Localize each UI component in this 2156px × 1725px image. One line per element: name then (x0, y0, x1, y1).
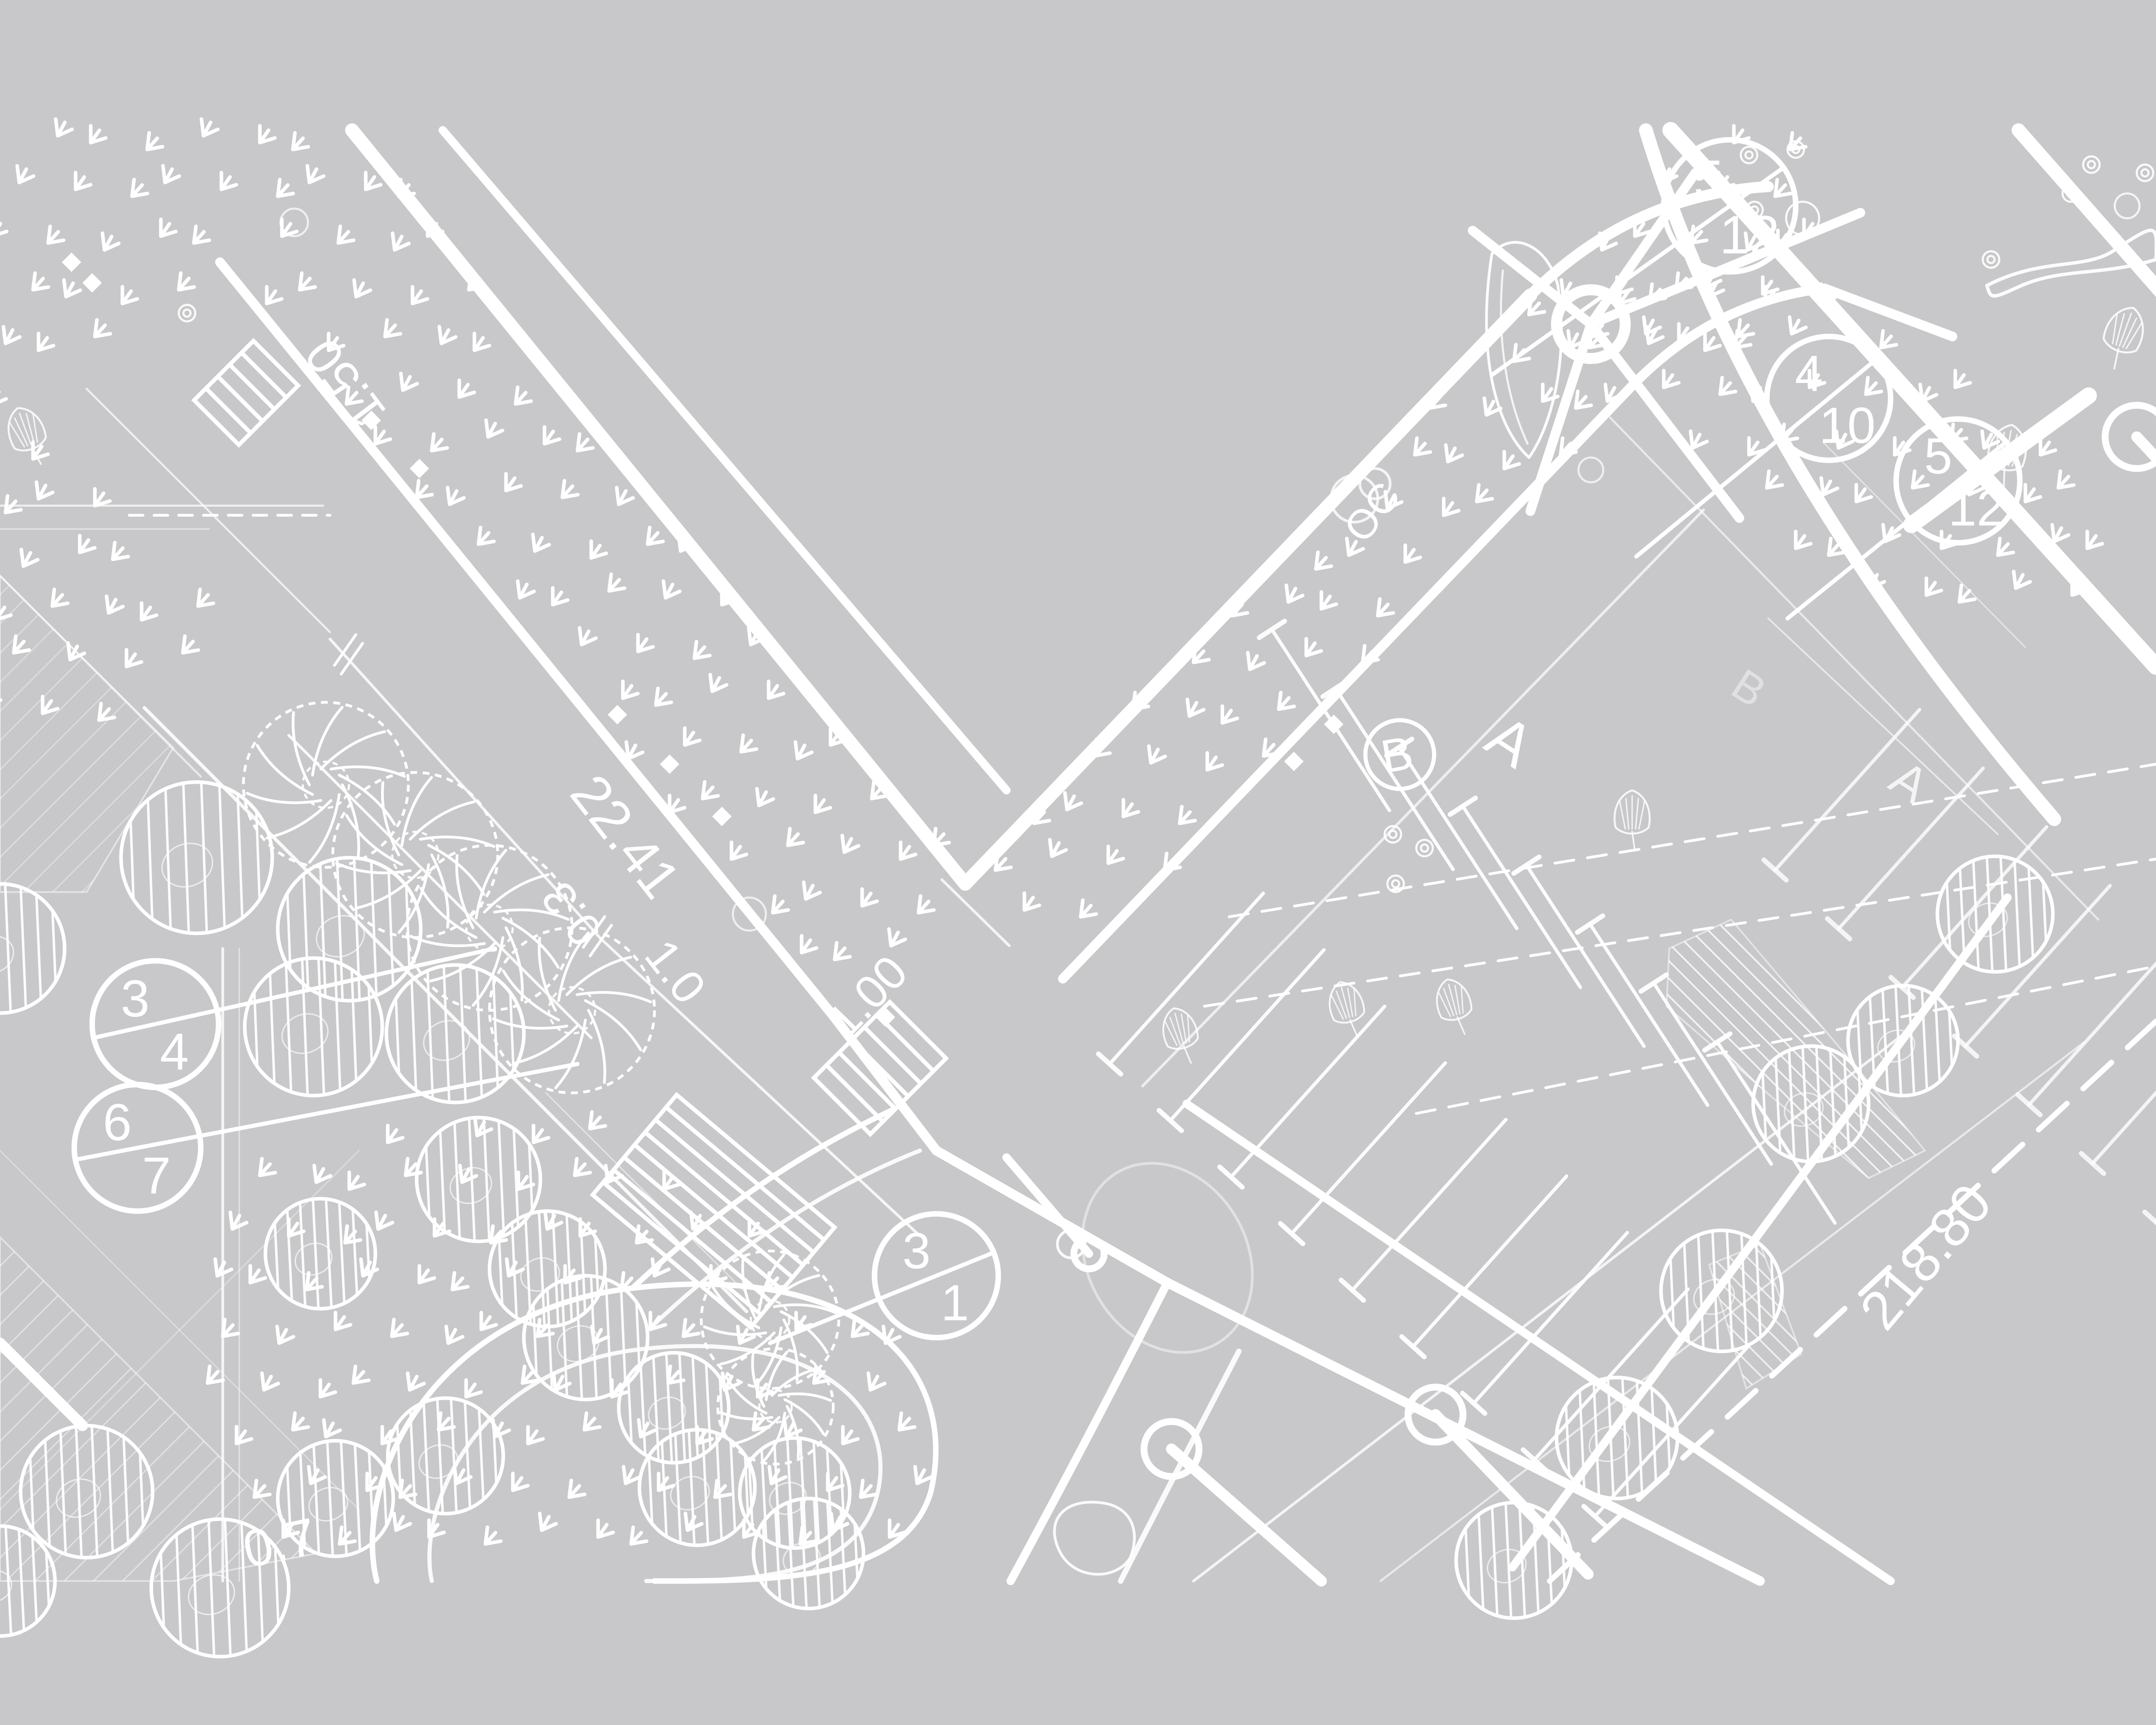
site-plan-svg: 22.410.31.01.001.50218.800.7ОС5124105123… (0, 0, 2156, 1725)
site-plan-drawing: 22.410.31.01.001.50218.800.7ОС5124105123… (0, 0, 2156, 1725)
plant-label-denominator: 12 (1948, 479, 2005, 536)
plant-label-denominator: 12 (1720, 204, 1780, 265)
plant-label-numerator: 5 (1924, 427, 1952, 484)
plant-label-numerator: 5 (1694, 149, 1724, 210)
plant-label-numerator: 4 (1795, 345, 1823, 402)
plant-label-numerator: 3 (903, 1222, 931, 1279)
plant-label-denominator: 1 (941, 1274, 969, 1331)
plant-label-numerator: 6 (103, 1094, 132, 1151)
plant-label-denominator: 10 (1819, 397, 1876, 454)
plant-label-numerator: 3 (121, 970, 150, 1028)
plant-label-denominator: 4 (160, 1023, 189, 1081)
plant-label-denominator: 7 (142, 1147, 171, 1204)
